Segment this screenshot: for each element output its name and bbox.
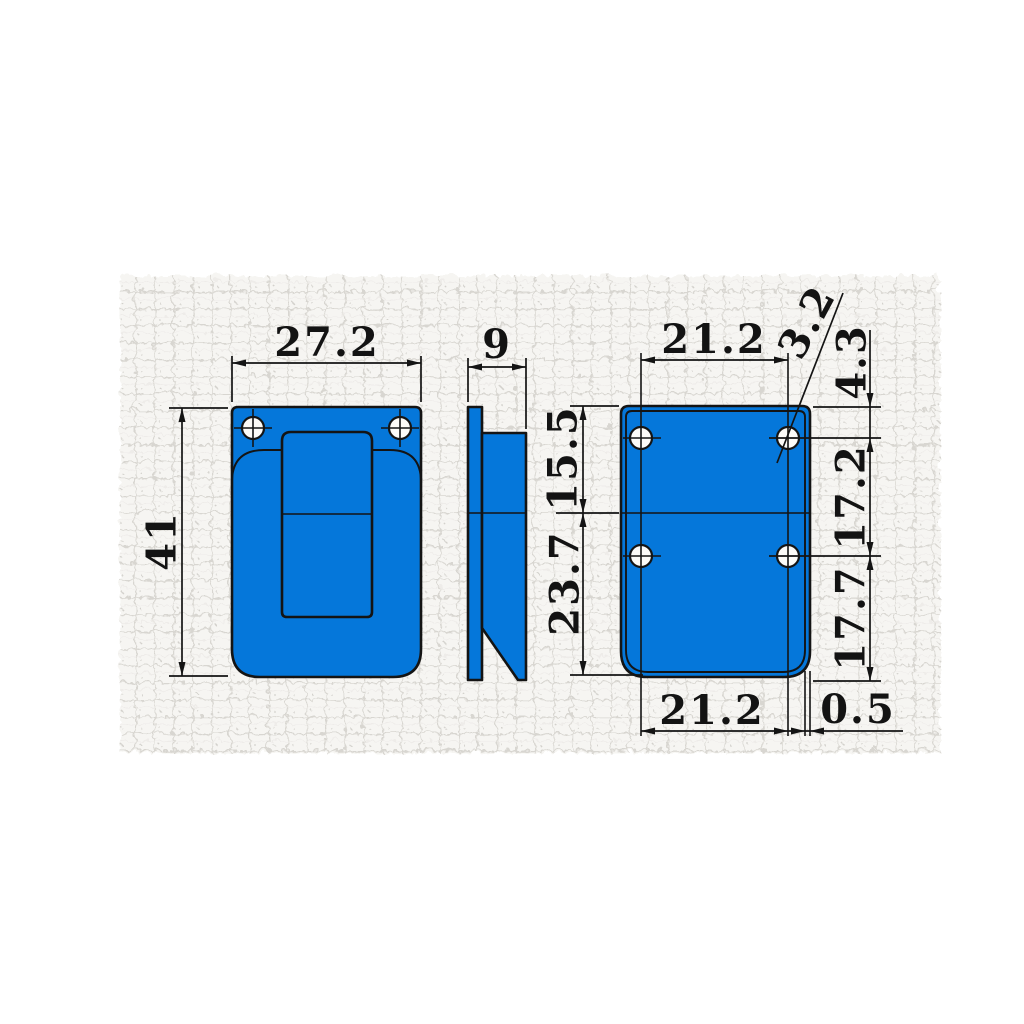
dim-label-front-height: 41	[139, 511, 186, 571]
dim-label-hole-pitch: 17.2	[828, 444, 875, 549]
dim-label-lower-section: 23.7	[542, 530, 589, 635]
dim-label-front-width: 27.2	[274, 319, 379, 366]
dim-label-hole-bottom-offset: 17.7	[828, 565, 875, 670]
side-view	[468, 407, 526, 680]
dim-label-edge-lip: 0.5	[820, 686, 896, 733]
dim-label-hole-span-top: 21.2	[661, 316, 766, 363]
front-latch-handle	[282, 432, 372, 617]
dim-label-upper-section: 15.5	[540, 405, 587, 510]
latch-technical-drawing: 27.2 41 9 21.2 3.2	[0, 0, 1024, 1024]
dim-label-hole-top-offset: 4.3	[829, 324, 876, 400]
side-plate-strip	[468, 407, 482, 680]
back-view	[621, 406, 810, 677]
dim-label-side-thickness: 9	[482, 321, 512, 368]
front-view	[232, 407, 421, 677]
dim-label-hole-span-bottom: 21.2	[659, 687, 764, 734]
drawing-canvas: 27.2 41 9 21.2 3.2	[0, 0, 1024, 1024]
